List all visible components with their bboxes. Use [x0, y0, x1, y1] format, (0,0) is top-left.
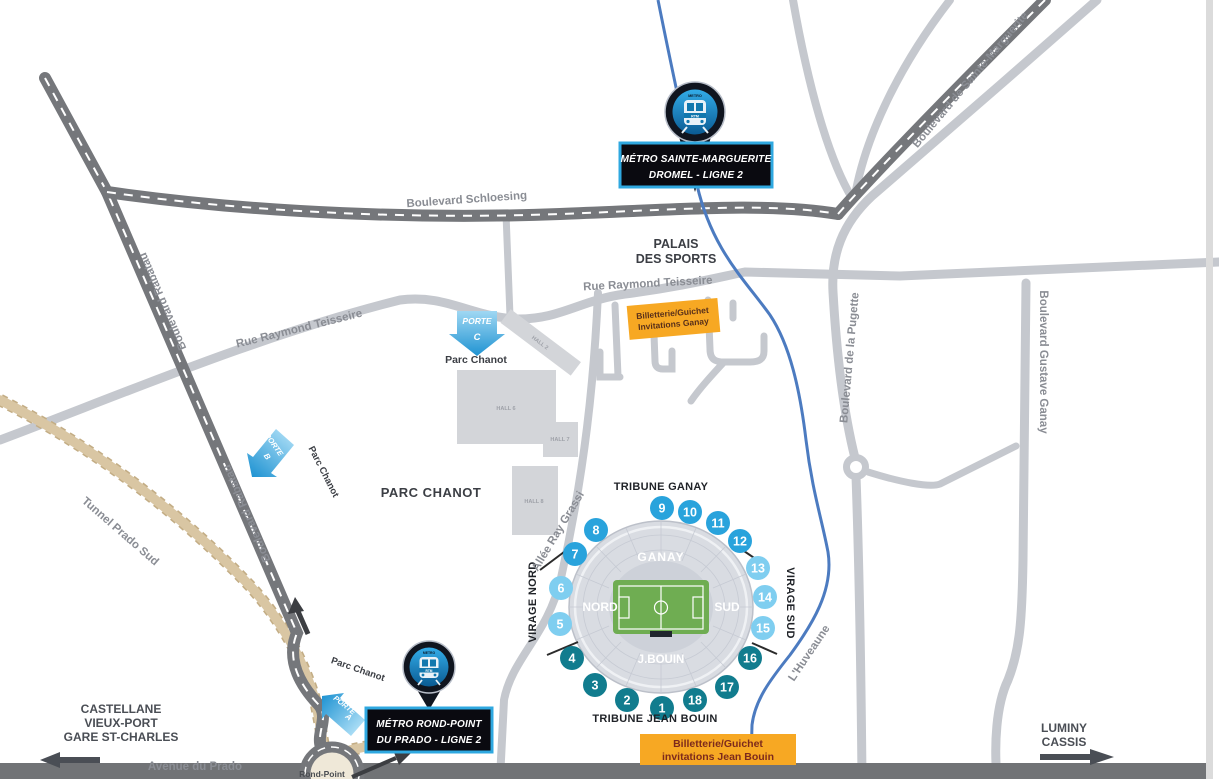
gustave-ganay-label: Boulevard Gustave Ganay [1037, 290, 1049, 434]
destination-west: CASTELLANE VIEUX-PORT GARE ST-CHARLES [40, 702, 178, 768]
metro-dromel-line1: MÉTRO SAINTE-MARGUERITE [621, 152, 772, 165]
metro-pin-prado: METRO RTM [403, 641, 455, 710]
metro-prado-line1: MÉTRO ROND-POINT [376, 717, 482, 730]
gate-number: 10 [683, 506, 697, 520]
gate-number: 16 [743, 652, 757, 666]
map-canvas: HALL 2 HALL 6 HALL 7 HALL 8 [0, 0, 1219, 779]
parc-chanot-small-a: Parc Chanot [330, 655, 387, 684]
porte-a-arrow: PORTE A [322, 693, 365, 736]
gate-number: 5 [557, 618, 564, 632]
tunnel-prado-sud-label: Tunnel Prado Sud [79, 495, 160, 568]
metro-icon-caption: METRO [688, 94, 702, 98]
tribune-ganay-label: TRIBUNE GANAY [614, 481, 709, 493]
rond-point-label: Rond-Point [299, 769, 345, 779]
pitch [613, 580, 709, 637]
gate-number: 4 [569, 652, 576, 666]
gate-number: 9 [659, 502, 666, 516]
ticket-jb-line1: Billetterie/Guichet [673, 738, 763, 750]
avenue-du-prado-label: Avenue du Prado [148, 761, 242, 773]
rtm-logo: RTM [426, 669, 433, 673]
road-ne-curve-1 [793, 0, 852, 198]
porte-c-word: PORTE [462, 316, 491, 326]
rabatau-label-lower: Boulevard Rabatau [221, 463, 273, 564]
gate-number: 12 [733, 535, 747, 549]
road-ne-curve-2 [856, 0, 950, 190]
gate-number: 18 [688, 694, 702, 708]
road-boulevard-gustave-ganay [996, 283, 1026, 779]
gate-number: 7 [572, 548, 579, 562]
metro-label-dromel: MÉTRO SAINTE-MARGUERITE DROMEL - LIGNE 2 [620, 143, 772, 187]
parc-chanot-small-b: Parc Chanot [306, 444, 342, 500]
gate-number: 6 [558, 582, 565, 596]
porte-b-arrow: PORTE B [247, 429, 294, 477]
dest-west-2: VIEUX-PORT [84, 716, 158, 730]
dest-west-3: GARE ST-CHARLES [64, 730, 179, 744]
porte-c-letter: C [474, 332, 481, 343]
virage-sud-label: VIRAGE SUD [784, 567, 796, 638]
arrow-east-icon [1040, 749, 1114, 765]
ticket-jb-line2: invitations Jean Bouin [662, 751, 774, 763]
gate-number: 2 [624, 694, 631, 708]
hall-7-label: HALL 7 [550, 437, 569, 443]
road-connector-east [868, 446, 1016, 485]
gate-number: 11 [711, 517, 724, 531]
junction-circle [847, 458, 866, 477]
tribune-jean-bouin-label: TRIBUNE JEAN BOUIN [592, 713, 717, 725]
parc-chanot-small-c: Parc Chanot [445, 354, 507, 366]
stand-jbouin-label: J.BOUIN [638, 654, 685, 666]
dest-west-1: CASTELLANE [81, 702, 162, 716]
road-stub-west [600, 305, 620, 377]
gate-number: 3 [592, 679, 599, 693]
gate-number: 13 [751, 562, 765, 576]
hall-8-label: HALL 8 [524, 499, 543, 505]
stand-sud-label: SUD [714, 600, 740, 614]
gate-number: 14 [758, 591, 772, 605]
schloesing-label: Boulevard Schloesing [406, 190, 527, 210]
destination-east: LUMINY CASSIS [1040, 721, 1114, 765]
parc-chanot-label: PARC CHANOT [381, 485, 482, 500]
road-connector-schloesing-teisseire [506, 214, 510, 316]
road-boulevard-pugette [833, 0, 1097, 779]
teisseire-label-west: Rue Raymond Teisseire [235, 308, 364, 351]
players-tunnel [650, 631, 672, 637]
gate-number: 17 [720, 681, 734, 695]
metro-icon-caption: METRO [423, 651, 436, 655]
metro-dromel-line2: DROMEL - LIGNE 2 [649, 170, 743, 181]
ticket-office-jean-bouin: Billetterie/Guichet invitations Jean Bou… [640, 734, 796, 765]
road-boulevard-rabatau [45, 78, 323, 747]
gate-number: 15 [756, 622, 770, 636]
map-right-border [1206, 0, 1213, 779]
stadium-access-map: HALL 2 HALL 6 HALL 7 HALL 8 [0, 0, 1219, 779]
stand-ganay-label: GANAY [637, 550, 684, 564]
stand-nord-label: NORD [582, 600, 618, 614]
palais-des-sports-label-2: DES SPORTS [636, 252, 717, 266]
metro-label-prado: MÉTRO ROND-POINT DU PRADO - LIGNE 2 [366, 708, 492, 752]
metro-prado-line2: DU PRADO - LIGNE 2 [377, 735, 482, 746]
dest-east-1: LUMINY [1041, 721, 1087, 735]
palais-des-sports-label-1: PALAIS [654, 237, 699, 251]
dest-east-2: CASSIS [1042, 735, 1087, 749]
stadium-velodrome: GANAY NORD SUD J.BOUIN [569, 521, 753, 693]
virage-nord-label: VIRAGE NORD [527, 562, 539, 643]
gate-number: 8 [593, 524, 600, 538]
porte-c-arrow: PORTE C [449, 311, 505, 356]
rtm-logo: RTM [691, 114, 699, 118]
hall-6-label: HALL 6 [496, 406, 515, 412]
